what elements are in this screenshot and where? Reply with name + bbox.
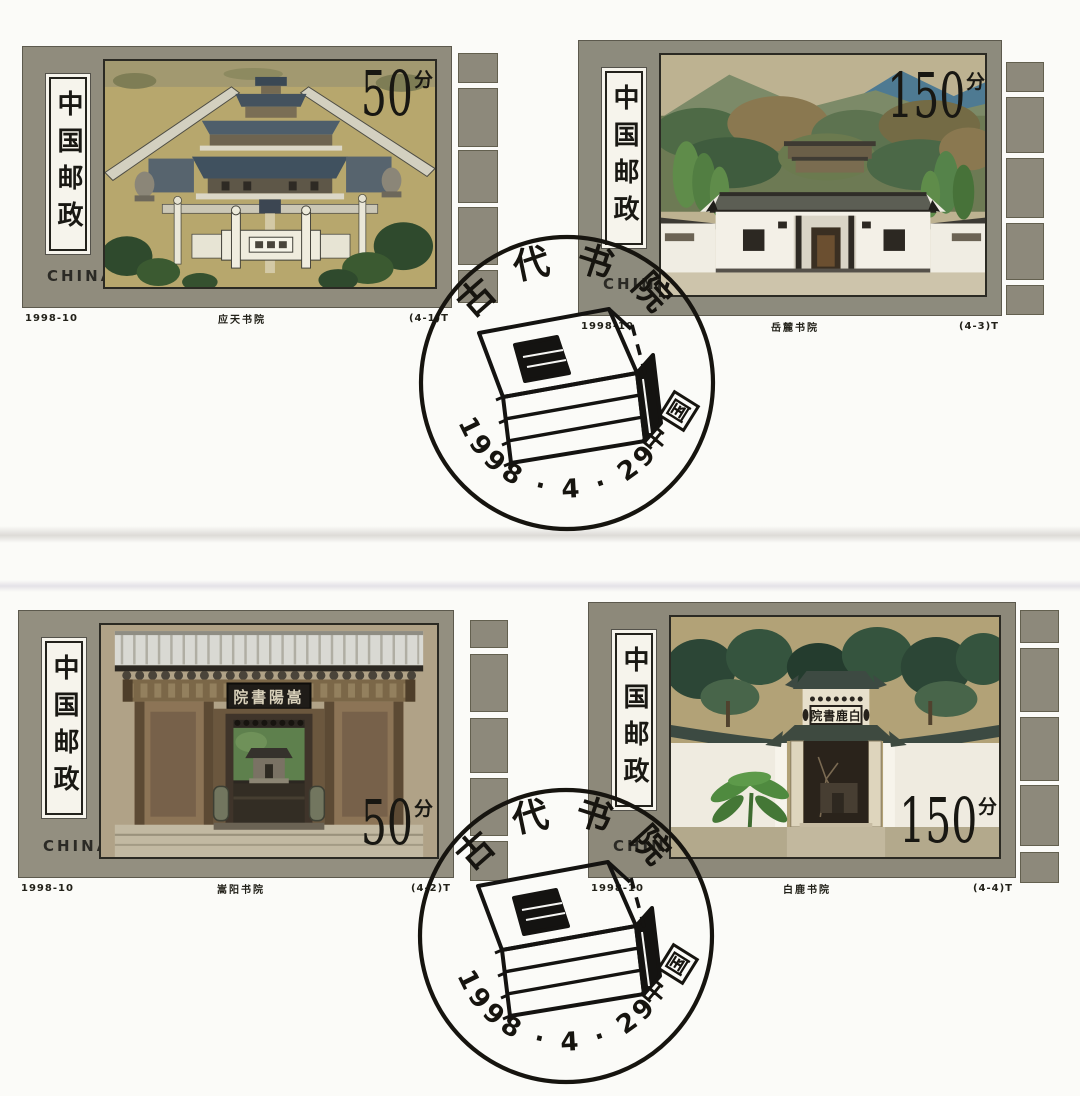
first-day-postmark: 古代书院 1998 · 4 · 29 中 国 [416,786,716,1086]
stamp-title: 嵩阳书院 [107,881,375,896]
denomination: 150 分 [847,71,985,122]
svg-text:院書鹿白: 院書鹿白 [810,709,861,723]
svg-text:院書陽嵩: 院書陽嵩 [233,689,304,707]
thread-bound-books-icon [478,862,660,1019]
postmark-country-boxed-char: 国 [660,392,699,431]
series-number: (4-3)T [923,321,999,332]
denomination: 150 分 [859,796,997,847]
sheet-margin-blocks [1020,0,1059,900]
stamp-selvage: 中国邮政 CHINA [18,610,454,878]
stamp-title: 应天书院 [111,311,373,326]
first-day-postmark: 古代书院 1998 · 4 · 29 中 国 [417,233,717,533]
tiled-roof [115,631,423,675]
china-post-label: 中国邮政 [611,84,637,232]
stamp-selvage: 中国邮政 CHINA [22,46,452,308]
stamp-title: 白鹿书院 [677,881,937,896]
stamp-caption-row: 1998-10 嵩阳书院 (4-2)T [21,880,451,896]
name-plaque: 院書陽嵩 [227,684,310,709]
gate-plaque: 院書鹿白 [803,706,870,724]
denomination: 50 分 [334,69,433,120]
china-post-label: 中国邮政 [621,646,647,794]
series-number: (4-4)T [937,883,1013,894]
scan-seam [0,580,1080,592]
main-hall [192,157,348,200]
issue-code: 1998-10 [21,883,107,894]
stamp-caption-row: 1998-10 应天书院 (4-1)T [25,310,449,326]
academy-front-hall [700,192,946,284]
rear-pavilion [784,141,876,172]
stamp-art-bailu: 院書鹿白 [669,615,1001,859]
postmark-country-boxed-char: 国 [659,945,698,984]
post-label-box: 中国邮政 [45,73,91,255]
post-label-box: 中国邮政 [41,637,87,819]
china-post-label: 中国邮政 [55,90,81,238]
stamp-sheet-scan: 中国邮政 CHINA [0,0,1080,1096]
issue-code: 1998-10 [25,313,111,324]
stamp-yingtian-academy: 中国邮政 CHINA [22,46,452,326]
post-label-box: 中国邮政 [611,629,657,811]
post-label-box: 中国邮政 [601,67,647,249]
stamp-art-yingtian: 50 分 [103,59,437,289]
stamp-art-songyang: 院書陽嵩 [99,623,439,859]
stamp-songyang-academy: 中国邮政 CHINA [18,610,454,896]
thread-bound-books-icon [479,309,661,466]
china-post-label: 中国邮政 [51,654,77,802]
central-doorway [214,709,325,827]
